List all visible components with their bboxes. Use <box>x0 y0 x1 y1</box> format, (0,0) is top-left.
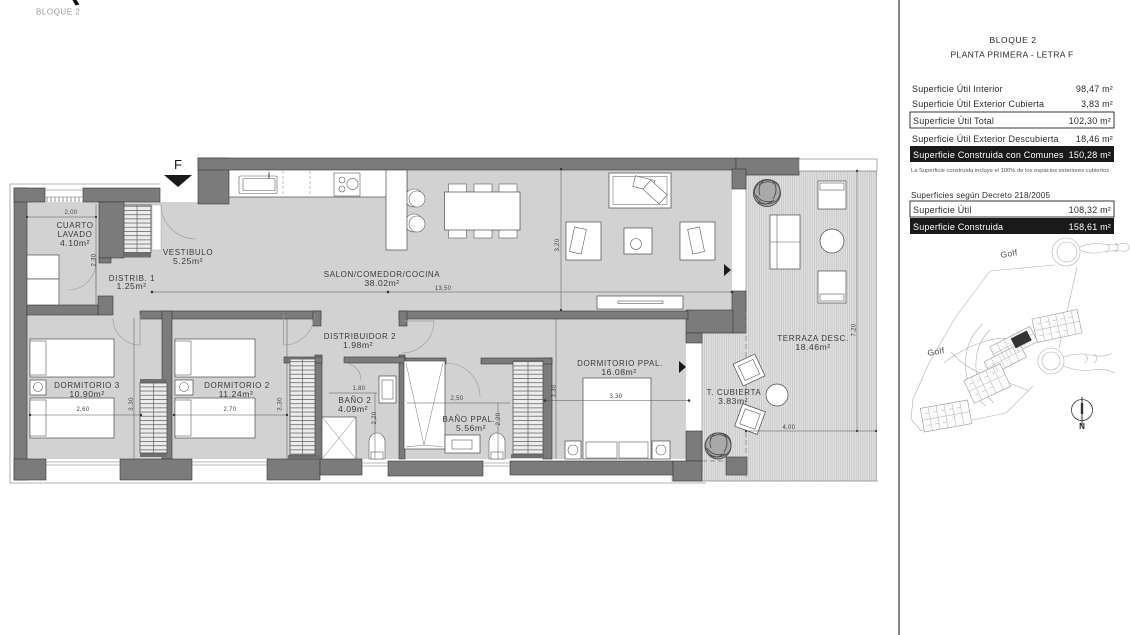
svg-text:2,60: 2,60 <box>77 407 90 413</box>
svg-text:3,20: 3,20 <box>555 238 561 251</box>
svg-text:7,20: 7,20 <box>852 323 858 336</box>
svg-text:Superficie Útil Interior: Superficie Útil Interior <box>912 84 1003 94</box>
svg-text:3,30: 3,30 <box>277 397 284 411</box>
svg-text:2,70: 2,70 <box>224 407 237 413</box>
svg-text:108,32 m²: 108,32 m² <box>1069 205 1111 215</box>
svg-text:3,30: 3,30 <box>552 384 558 397</box>
svg-text:13,50: 13,50 <box>435 286 452 292</box>
svg-text:4.09m²: 4.09m² <box>338 404 368 414</box>
svg-text:Superficie Útil: Superficie Útil <box>913 205 972 215</box>
svg-text:Superficie Construida: Superficie Construida <box>913 222 1003 232</box>
svg-text:5.25m²: 5.25m² <box>173 256 203 266</box>
svg-text:18,46 m²: 18,46 m² <box>1076 134 1113 144</box>
svg-text:11.24m²: 11.24m² <box>219 389 254 399</box>
svg-text:38.02m²: 38.02m² <box>364 278 399 288</box>
svg-text:Golf: Golf <box>927 345 946 358</box>
svg-text:3,83 m²: 3,83 m² <box>1081 99 1113 109</box>
svg-text:98,47 m²: 98,47 m² <box>1076 84 1113 94</box>
svg-text:2,50: 2,50 <box>451 396 464 402</box>
svg-text:BLOQUE 2: BLOQUE 2 <box>36 8 80 17</box>
svg-text:1.98m²: 1.98m² <box>343 340 373 350</box>
svg-text:PLANTA PRIMERA - LETRA F: PLANTA PRIMERA - LETRA F <box>950 50 1073 60</box>
svg-text:5.56m²: 5.56m² <box>456 423 486 433</box>
svg-text:Superficie Útil Total: Superficie Útil Total <box>913 116 994 126</box>
svg-text:N: N <box>1079 422 1085 431</box>
svg-text:2,30: 2,30 <box>92 253 98 266</box>
svg-text:10.90m²: 10.90m² <box>69 389 104 399</box>
svg-text:Superficie Útil Exterior Descu: Superficie Útil Exterior Descubierta <box>912 134 1059 144</box>
svg-text:CUARTO: CUARTO <box>56 221 93 230</box>
svg-text:Superficie Construida con Comu: Superficie Construida con Comunes <box>913 150 1064 160</box>
svg-text:2,00: 2,00 <box>65 210 78 216</box>
svg-text:2,20: 2,20 <box>372 411 378 424</box>
svg-text:BLOQUE 2: BLOQUE 2 <box>990 35 1037 45</box>
svg-text:Golf: Golf <box>1000 247 1019 260</box>
svg-text:150,28 m²: 150,28 m² <box>1069 150 1111 160</box>
svg-text:158,61 m²: 158,61 m² <box>1069 222 1111 232</box>
svg-text:2,20: 2,20 <box>496 412 502 425</box>
svg-text:18.46m²: 18.46m² <box>795 342 830 352</box>
svg-text:La Superficie construida inclu: La Superficie construida incluye el 100%… <box>911 168 1109 174</box>
svg-text:1,80: 1,80 <box>353 386 366 392</box>
svg-text:Superficie Útil Exterior Cubie: Superficie Útil Exterior Cubierta <box>912 99 1044 109</box>
svg-text:4,00: 4,00 <box>783 425 796 431</box>
svg-text:Superficies según Decreto 218/: Superficies según Decreto 218/2005 <box>911 191 1050 200</box>
svg-text:1.25m²: 1.25m² <box>116 281 146 291</box>
svg-text:3,30: 3,30 <box>610 394 623 400</box>
svg-text:16.08m²: 16.08m² <box>601 367 636 377</box>
svg-text:102,30 m²: 102,30 m² <box>1069 116 1111 126</box>
svg-text:F: F <box>174 157 182 172</box>
svg-text:3.83m²: 3.83m² <box>718 396 748 406</box>
svg-text:3,30: 3,30 <box>128 397 135 411</box>
svg-text:4.10m²: 4.10m² <box>60 238 90 248</box>
